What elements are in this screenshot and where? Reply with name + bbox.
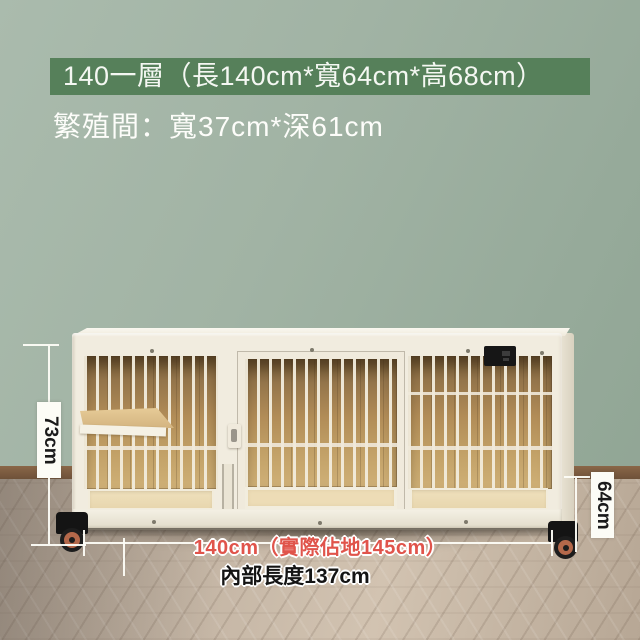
bottom-panel-right	[410, 488, 548, 510]
wire-bars-right	[408, 356, 552, 489]
dim-depth-right-label: 64cm	[591, 472, 614, 538]
dim-line-left-upper	[48, 346, 50, 404]
screw-icon	[318, 521, 322, 525]
cage-section-right	[408, 356, 552, 489]
cage-bottom-rail	[72, 509, 562, 530]
screw-icon	[152, 520, 156, 524]
dim-tick-width-left	[83, 530, 85, 556]
dim-height-left-label: 73cm	[37, 402, 61, 478]
accessory-box	[484, 346, 516, 366]
door-back-panel	[245, 359, 397, 487]
caster-wheel-left	[60, 528, 84, 552]
bottom-panel-left	[88, 489, 214, 510]
dim-cap-top-right	[564, 476, 590, 478]
dim-tick-width-right	[551, 530, 553, 556]
rail-left	[84, 446, 218, 450]
screw-icon	[540, 351, 544, 355]
cage-door	[238, 352, 404, 516]
wire-bars-door	[245, 359, 397, 487]
tray-slot	[222, 464, 234, 514]
screw-icon	[464, 520, 468, 524]
door-bottom-panel	[245, 487, 397, 509]
product-image: 140一層（長140cm*寬64cm*高68cm） 繁殖間：寬37cm*深61c…	[0, 0, 640, 640]
product-title-banner: 140一層（長140cm*寬64cm*高68cm）	[50, 58, 590, 95]
product-title: 140一層（長140cm*寬64cm*高68cm）	[63, 61, 544, 91]
rail-right-lower	[408, 446, 552, 450]
dim-width-label: 140cm（實際佔地145cm）	[180, 531, 460, 560]
dim-cap-bottom-left	[31, 544, 86, 546]
screw-icon	[150, 349, 154, 353]
dim-line-left-lower	[48, 478, 50, 544]
dim-cap-top-left	[23, 344, 59, 346]
screw-icon	[310, 348, 314, 352]
screw-icon	[466, 349, 470, 353]
rail-door	[245, 443, 397, 447]
caster-wheel-right	[554, 536, 577, 559]
rail-right-upper	[408, 392, 552, 395]
breeding-room-subtitle: 繁殖間：寬37cm*深61cm	[53, 105, 384, 145]
dim-inner-length-label: 內部長度137cm	[190, 560, 400, 590]
dim-line-right	[575, 478, 577, 552]
dim-ext-line-inner	[123, 538, 125, 576]
latch-pin-icon	[231, 429, 237, 442]
